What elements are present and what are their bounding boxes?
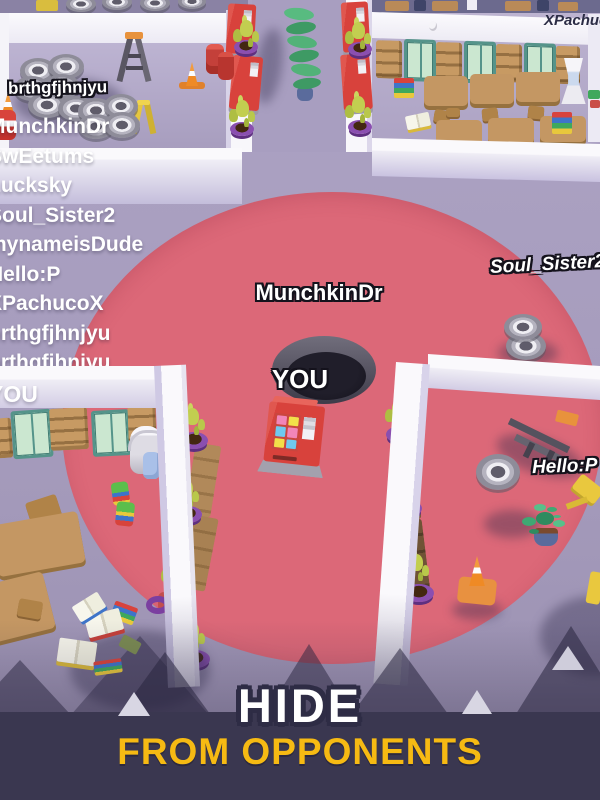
nametag-bottom-right: Hello:P: [532, 455, 598, 479]
bookshelf: [436, 42, 462, 81]
player-list-item: XPachucoX: [0, 289, 143, 319]
cabinet: [10, 409, 53, 460]
shadow: [484, 510, 540, 538]
step-ladder: [118, 32, 152, 80]
vending-item: [276, 415, 287, 425]
ladder-top: [137, 100, 150, 105]
tire: [504, 314, 542, 340]
top-right-room-front-wall: [372, 138, 600, 182]
ladder-rail: [117, 36, 134, 82]
cactus: [352, 96, 365, 113]
ladder-top: [125, 32, 143, 39]
game-viewport[interactable]: HIDE FROM OPPONENTS MunchkinDr SwEetums …: [0, 0, 600, 800]
ladder-rung: [128, 54, 141, 58]
ladder-rail: [135, 36, 152, 82]
vending-item: [274, 438, 285, 448]
plant-pot: [230, 122, 254, 136]
vending-panel: [302, 417, 316, 440]
backroom-desk: [432, 1, 458, 11]
ladder-top: [555, 410, 579, 427]
backroom-desk: [505, 1, 531, 11]
desk: [470, 74, 514, 104]
nametag-hole-owner: MunchkinDr: [199, 280, 439, 306]
player-name-list: MunchkinDr SwEetums Lucksky Soul_Sister2…: [0, 112, 143, 378]
plant-pot: [348, 120, 372, 134]
vending-window: [272, 413, 302, 452]
nametag-top-left: brthgfjhnjyu: [8, 77, 107, 99]
player-list-item: brthgfjhnjyu: [0, 319, 143, 349]
backroom-chair: [537, 0, 549, 11]
backroom-desk: [558, 2, 578, 11]
desk: [424, 76, 468, 106]
tire: [476, 454, 520, 490]
player-list-item: Hello:P: [0, 260, 143, 290]
vending-item: [287, 428, 298, 438]
vending-item: [286, 439, 297, 449]
top-right-room-right-wall: [588, 14, 600, 142]
banner-title: HIDE: [0, 678, 600, 733]
plant-pot: [234, 40, 258, 54]
desk: [516, 72, 560, 102]
cactus: [240, 20, 253, 37]
chair-leg: [566, 496, 589, 509]
cactus: [236, 100, 249, 117]
cactus: [352, 22, 365, 39]
player-list-item: Lucksky: [0, 171, 143, 201]
bookshelf: [49, 407, 89, 451]
chair: [17, 598, 44, 620]
player-list-item: SwEetums: [0, 142, 143, 172]
backroom-wall: [467, 0, 477, 10]
nametag-top-right: XPachucoX: [544, 12, 600, 29]
plant-pot-blue: [534, 528, 558, 546]
player-list-item: MunchkinDr: [0, 112, 143, 142]
red-barrel: [218, 52, 234, 80]
ladder-top-strip: [36, 0, 58, 11]
green-box: [588, 90, 600, 99]
cabinet: [91, 409, 131, 457]
bookshelf: [376, 40, 402, 79]
player-list-item: mynameisDude: [0, 230, 143, 260]
red-box: [590, 100, 600, 108]
book-stack: [552, 112, 572, 134]
vending-item: [288, 416, 299, 426]
vending-item: [275, 426, 286, 436]
player-list-item-you: YOU: [0, 381, 38, 408]
fallen-chair: [566, 476, 600, 516]
desk: [488, 118, 534, 144]
chair: [446, 108, 460, 117]
book-stack: [394, 78, 414, 98]
backroom-desk: [385, 1, 409, 11]
player-list-item: Soul_Sister2: [0, 201, 143, 231]
banner-subtitle: FROM OPPONENTS: [0, 731, 600, 773]
fern-pot: [297, 88, 313, 101]
hole-you-label: YOU: [240, 364, 360, 395]
backroom-chair: [414, 0, 426, 11]
ladder-rail: [144, 102, 157, 135]
egg: [429, 21, 437, 31]
ladder-rung: [126, 66, 143, 70]
vending-machine: [263, 401, 326, 472]
toy-figure: [115, 501, 135, 527]
plant-pot: [348, 42, 372, 56]
plant-leaves: [536, 512, 554, 525]
